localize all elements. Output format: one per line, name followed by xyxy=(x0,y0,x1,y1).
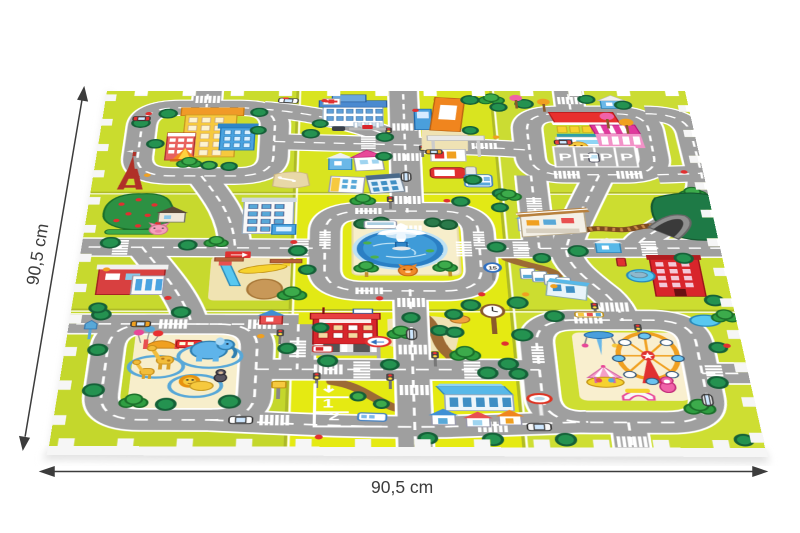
svg-text:90,5 cm: 90,5 cm xyxy=(22,222,52,287)
svg-text:90,5 cm: 90,5 cm xyxy=(371,477,433,497)
